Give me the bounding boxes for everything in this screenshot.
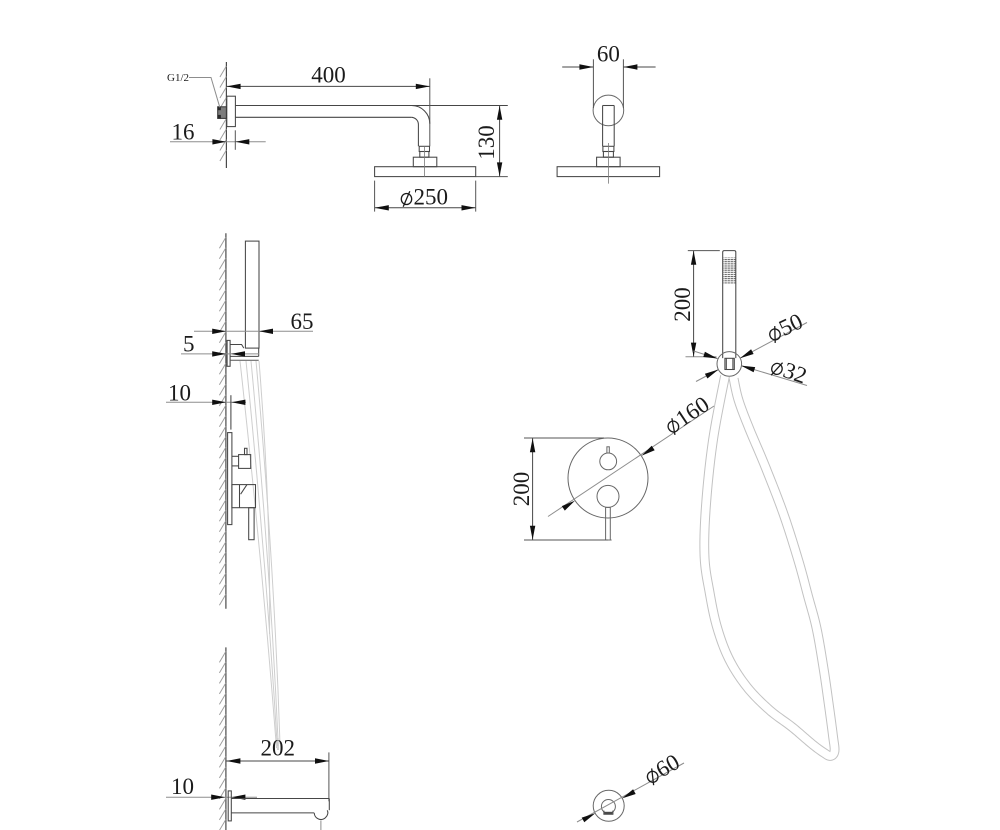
svg-text:200: 200 [509,472,534,507]
svg-text:10: 10 [171,774,194,799]
svg-text:250: 250 [413,184,448,209]
svg-text:60: 60 [597,42,620,67]
svg-text:400: 400 [311,63,346,88]
svg-text:10: 10 [168,381,191,406]
svg-text:130: 130 [474,125,499,160]
svg-text:200: 200 [670,287,695,322]
svg-text:G1/2: G1/2 [167,72,189,84]
svg-text:16: 16 [172,120,195,145]
svg-text:5: 5 [183,332,195,357]
svg-text:65: 65 [291,309,314,334]
